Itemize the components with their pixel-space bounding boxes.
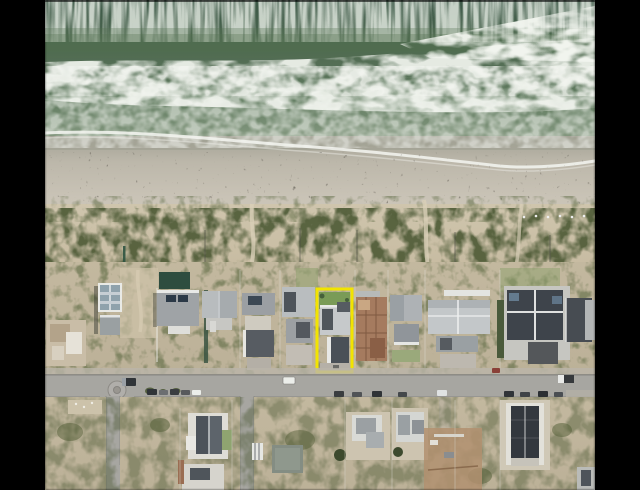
bush [552,423,572,437]
shadow [94,286,98,334]
road-shoulder [566,390,595,398]
house-f [282,287,315,365]
vehicle [159,390,168,395]
construction-site [424,428,482,490]
tree [345,298,349,302]
vehicle-cab [122,378,126,386]
vehicle [372,391,382,397]
house-g-construction [356,291,387,361]
shadow [153,293,157,327]
roof-white [66,332,82,354]
beachfront-houses [45,262,595,374]
vehicle [492,368,500,373]
paving [286,345,312,365]
paving [440,354,476,368]
vehicle [437,390,447,396]
roof-dark [331,337,349,363]
roundabout-island [114,387,121,394]
house-o [500,400,550,470]
skylight [509,293,519,301]
solar-panel [178,295,188,302]
solar-panel [166,295,176,302]
dirt-ground [424,428,482,490]
slab-inner [275,448,300,470]
roof-lit-side [202,291,218,318]
brick-wall [178,460,184,484]
photo-content [45,0,595,490]
house-n2 [392,408,428,460]
dark-room [370,338,385,358]
house-h [390,295,422,362]
vehicle-bed [564,375,574,383]
roof-trim [243,330,246,357]
vehicle [181,390,190,395]
neighbor-roof-partial [585,300,595,340]
white-wall [444,290,490,296]
wall-under-construction [434,434,464,437]
roof-lower [206,318,232,330]
roof-lit-half [209,416,222,454]
debris [91,402,93,404]
truck-right [558,375,574,383]
vehicle [520,392,530,397]
dark-paving [528,342,558,364]
letterbox-bar-left [0,0,45,490]
deck [511,458,539,466]
foam-core [45,66,595,96]
post [559,215,562,218]
vehicle [147,389,157,395]
courtyard [245,316,271,330]
vehicle [504,391,514,397]
roof-trim [327,337,331,363]
solar-panel [248,296,262,305]
roof-white [168,326,190,334]
teal-roof [159,272,190,289]
lawn [222,430,232,450]
bush [57,423,83,441]
tree [320,294,325,299]
roof-shade [428,300,490,308]
tree [334,449,346,461]
roof-lower [100,315,120,335]
roof-trim [394,342,419,345]
vehicle [283,377,295,384]
roof-wing [366,432,384,448]
materials [430,440,438,445]
debris [83,406,85,408]
road-edge-line [45,375,595,376]
roof-dark [190,468,210,480]
lawn [392,350,420,362]
roof [412,420,424,434]
house-d [202,291,237,332]
shed-roof [252,443,263,460]
roof-panel [100,301,120,304]
aerial-photo [0,0,640,490]
roof [52,346,64,360]
vehicle [334,391,344,397]
swash-zone [45,96,595,148]
post [535,215,538,218]
house-m [186,413,232,459]
screenshot-root [0,0,640,490]
house-m2 [178,460,224,490]
truck-on-road [122,378,136,386]
roof-dark [581,470,591,486]
vehicle [192,390,201,395]
letterbox-bar-right [595,0,640,490]
roof-slate [337,302,350,312]
roof [356,418,376,434]
vehicle [398,392,407,397]
vehicle-cab [558,375,564,383]
post [571,216,574,219]
roof-slate [322,309,333,330]
vehicle [538,391,548,397]
vehicle [554,392,563,397]
post [583,215,586,218]
hedge [497,300,505,358]
vehicle [170,389,179,395]
roof-panel [100,292,120,295]
post [547,216,550,219]
roof-dark [440,338,452,350]
skylight [552,296,562,304]
sand-patch [358,300,370,310]
roof [398,415,410,435]
parked-car [210,321,216,332]
roof-dark [246,330,274,357]
roof-lower [394,324,419,342]
roof-dark [296,322,310,338]
roof-dark [284,292,296,312]
residential-area-south [45,388,595,490]
bush [150,418,170,432]
tree [393,447,403,457]
debris [75,403,77,405]
house-a [46,320,86,366]
roof-trim [100,315,120,318]
roof-shade-side [390,295,404,321]
materials [444,452,454,458]
house-corner-partial [577,467,595,490]
verge [45,368,595,375]
post [523,216,526,219]
roof-trim [157,290,199,293]
roof-white [186,436,196,450]
vehicle [352,392,362,397]
sand-path [252,204,254,262]
